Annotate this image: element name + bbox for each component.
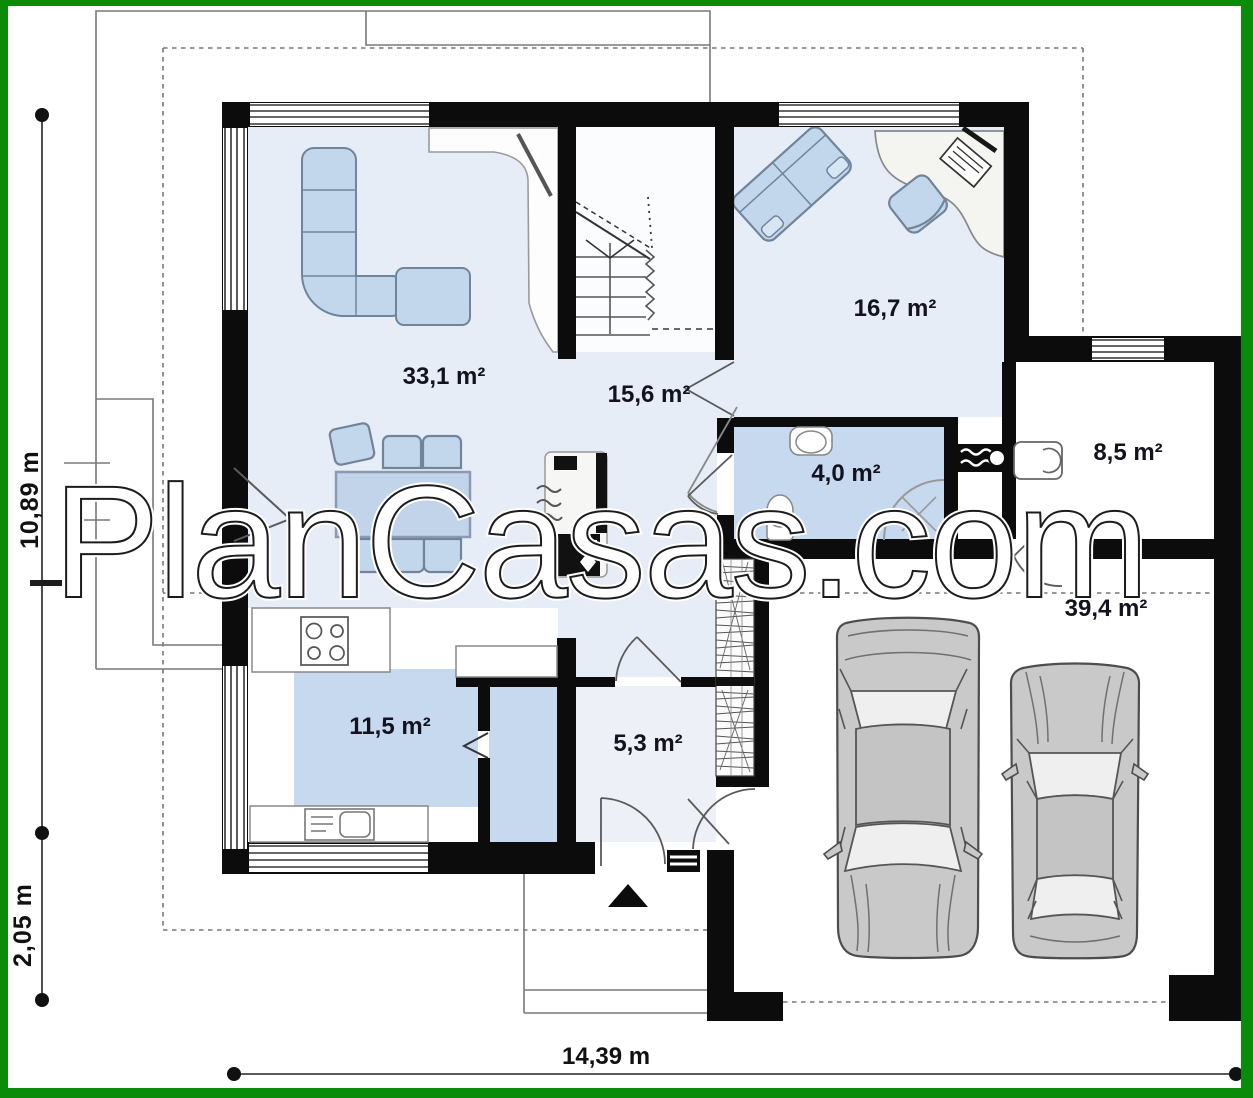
svg-text:10,89 m: 10,89 m <box>16 450 44 549</box>
svg-text:11,5 m²: 11,5 m² <box>349 713 430 740</box>
svg-text:5,3 m²: 5,3 m² <box>613 730 682 757</box>
svg-text:16,7 m²: 16,7 m² <box>854 295 937 322</box>
svg-text:33,1 m²: 33,1 m² <box>403 363 486 390</box>
svg-text:15,6 m²: 15,6 m² <box>608 381 691 408</box>
svg-text:2,05 m: 2,05 m <box>9 883 37 967</box>
svg-text:14,39 m: 14,39 m <box>562 1043 650 1070</box>
svg-text:PlanCasas.com: PlanCasas.com <box>53 452 1147 631</box>
